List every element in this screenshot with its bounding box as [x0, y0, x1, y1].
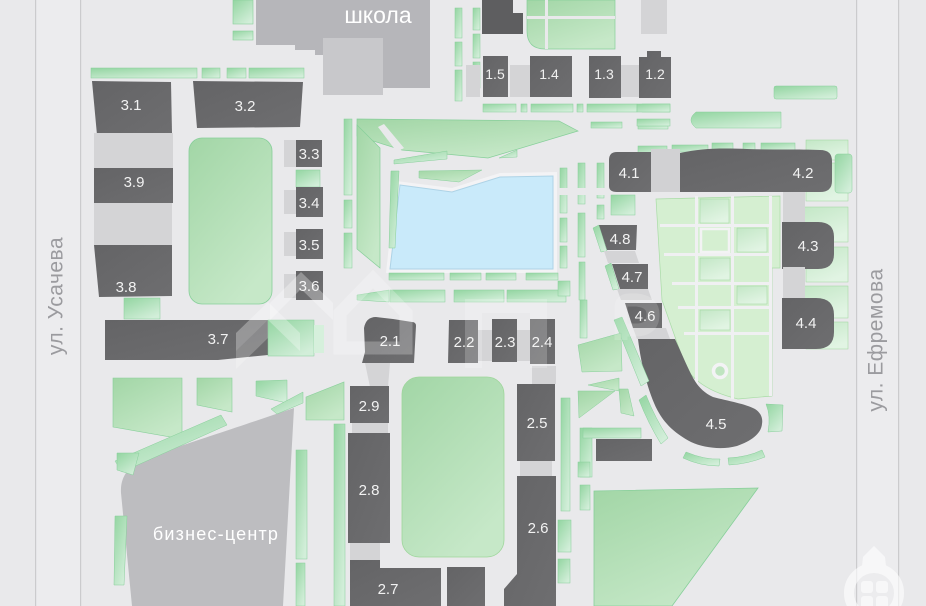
svg-text:3.2: 3.2	[235, 98, 256, 115]
svg-text:1.4: 1.4	[539, 66, 559, 82]
svg-text:4.1: 4.1	[619, 165, 640, 182]
svg-text:4.8: 4.8	[610, 231, 631, 248]
svg-text:2.8: 2.8	[359, 482, 380, 499]
svg-text:ул. Усачева: ул. Усачева	[45, 237, 68, 355]
svg-text:3.5: 3.5	[299, 237, 320, 254]
svg-text:4.3: 4.3	[798, 238, 819, 255]
svg-text:3.8: 3.8	[116, 279, 137, 296]
svg-text:3.9: 3.9	[124, 174, 145, 191]
svg-text:1.2: 1.2	[645, 66, 665, 82]
svg-text:бизнес-центр: бизнес-центр	[153, 524, 279, 544]
svg-text:1.3: 1.3	[594, 66, 614, 82]
svg-text:2.9: 2.9	[359, 398, 380, 415]
svg-text:школа: школа	[344, 2, 411, 28]
svg-text:4.4: 4.4	[796, 315, 817, 332]
svg-text:3.4: 3.4	[299, 195, 320, 212]
svg-text:4.2: 4.2	[793, 165, 814, 182]
svg-text:ул. Ефремова: ул. Ефремова	[865, 268, 888, 411]
svg-text:3.7: 3.7	[208, 331, 229, 348]
svg-text:3.3: 3.3	[299, 146, 320, 163]
svg-text:2.5: 2.5	[527, 415, 548, 432]
svg-text:4.5: 4.5	[706, 416, 727, 433]
svg-text:2.3: 2.3	[495, 334, 516, 351]
svg-text:1.5: 1.5	[485, 66, 505, 82]
svg-text:4.7: 4.7	[622, 269, 643, 286]
svg-text:3.1: 3.1	[121, 97, 142, 114]
svg-text:2.6: 2.6	[528, 520, 549, 537]
svg-text:2.7: 2.7	[378, 581, 399, 598]
